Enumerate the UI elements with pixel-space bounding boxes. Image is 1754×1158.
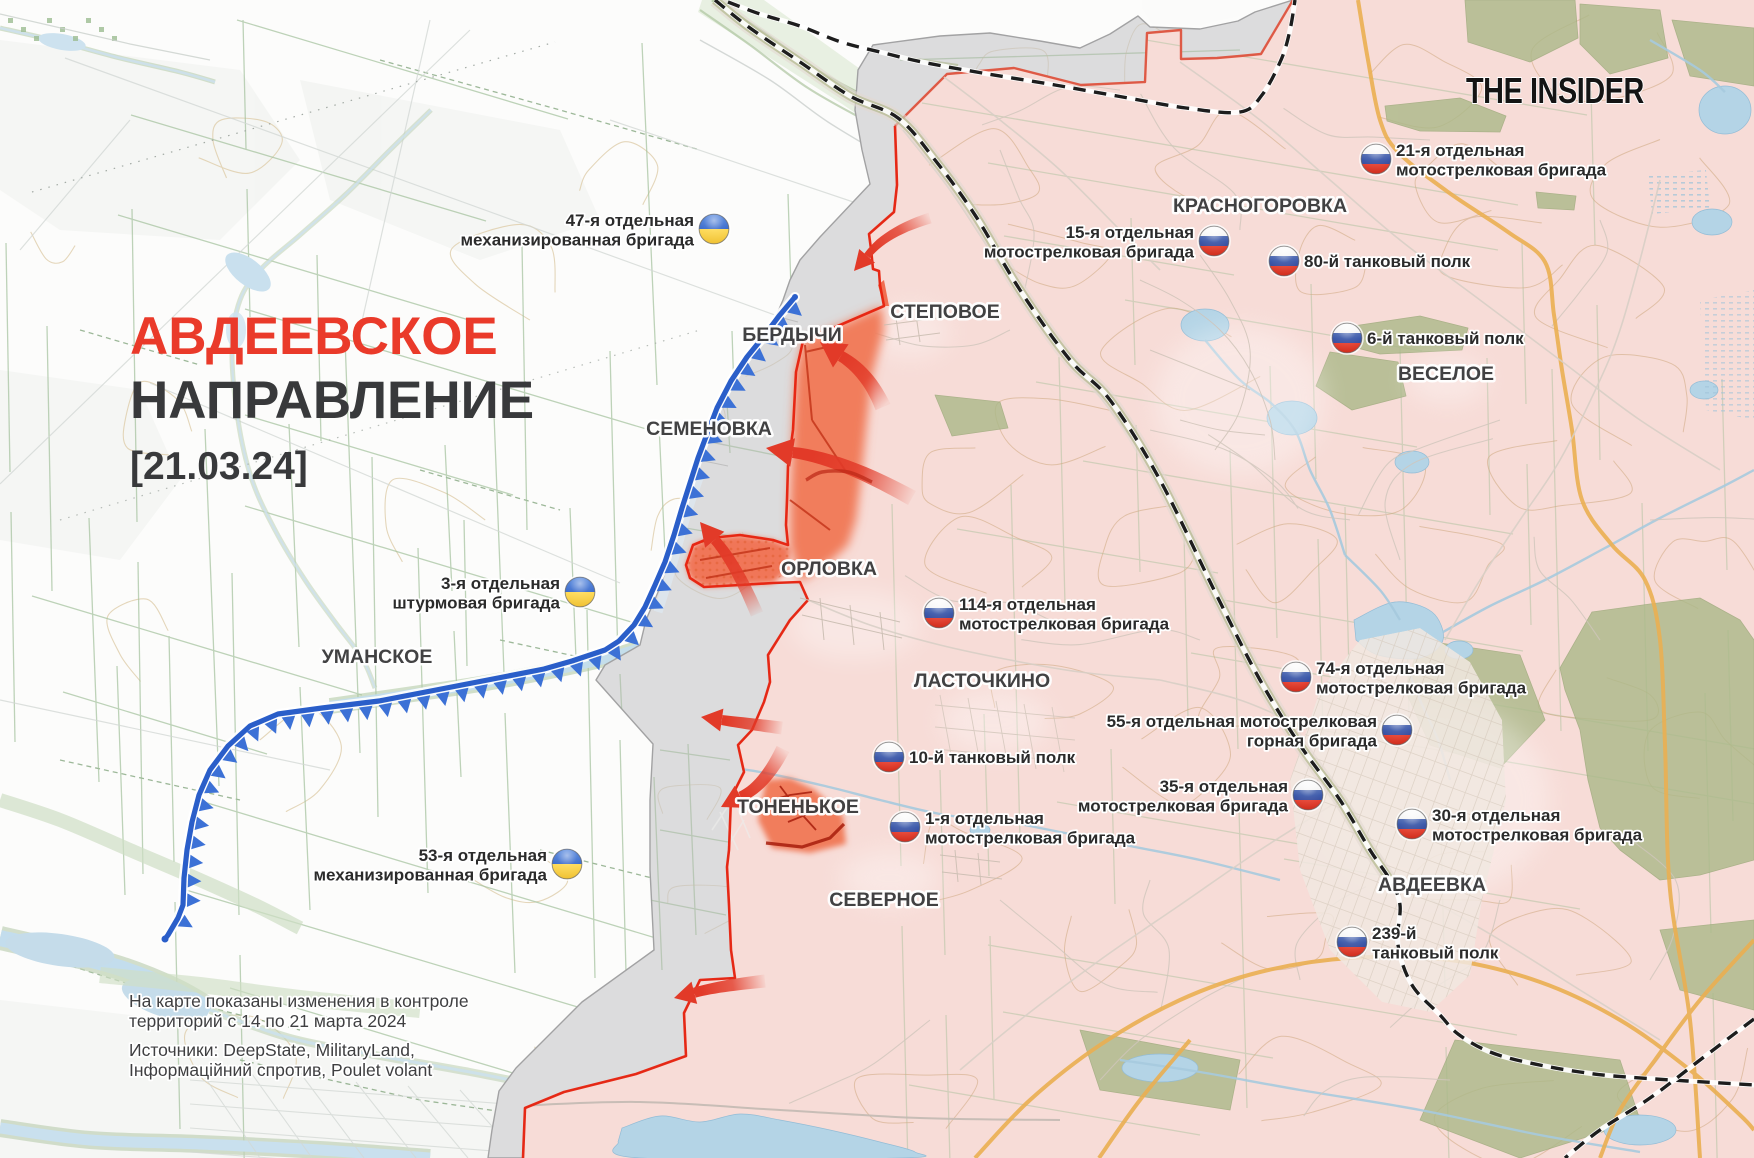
svg-text:мотострелковая бригада: мотострелковая бригада xyxy=(1316,678,1527,697)
svg-text:СТЕПОВОЕ: СТЕПОВОЕ xyxy=(890,301,999,323)
svg-text:Інформаційний спротив, Poulet: Інформаційний спротив, Poulet volant xyxy=(129,1060,432,1080)
svg-text:47-я отдельная: 47-я отдельная xyxy=(566,211,694,230)
svg-text:горная бригада: горная бригада xyxy=(1247,731,1378,750)
svg-text:80-й танковый полк: 80-й танковый полк xyxy=(1304,252,1471,271)
svg-text:30-я отдельная: 30-я отдельная xyxy=(1432,806,1560,825)
svg-text:АВДЕЕВСКОЕ: АВДЕЕВСКОЕ xyxy=(130,307,498,366)
svg-text:[21.03.24]: [21.03.24] xyxy=(130,445,308,488)
svg-text:механизированная бригада: механизированная бригада xyxy=(313,865,547,884)
svg-text:СЕВЕРНОЕ: СЕВЕРНОЕ xyxy=(829,889,938,911)
svg-text:6-й танковый полк: 6-й танковый полк xyxy=(1367,329,1524,348)
svg-text:мотострелковая бригада: мотострелковая бригада xyxy=(1396,160,1607,179)
svg-text:55-я отдельная мотострелковая: 55-я отдельная мотострелковая xyxy=(1107,712,1377,731)
svg-text:мотострелковая бригада: мотострелковая бригада xyxy=(1432,825,1643,844)
svg-text:танковый полк: танковый полк xyxy=(1372,943,1499,962)
svg-text:штурмовая бригада: штурмовая бригада xyxy=(393,593,561,612)
svg-text:АВДЕЕВКА: АВДЕЕВКА xyxy=(1378,874,1486,896)
svg-text:Источники: DeepState, Military: Источники: DeepState, MilitaryLand, xyxy=(129,1040,415,1060)
svg-text:На карте показаны изменения в: На карте показаны изменения в контроле xyxy=(129,991,469,1011)
svg-text:НАПРАВЛЕНИЕ: НАПРАВЛЕНИЕ xyxy=(130,371,534,430)
svg-text:СЕМЕНОВКА: СЕМЕНОВКА xyxy=(646,418,772,440)
svg-text:1-я отдельная: 1-я отдельная xyxy=(925,809,1044,828)
svg-text:53-я отдельная: 53-я отдельная xyxy=(419,846,547,865)
svg-text:15-я отдельная: 15-я отдельная xyxy=(1066,223,1194,242)
svg-text:мотострелковая бригада: мотострелковая бригада xyxy=(984,242,1195,261)
svg-text:ЛАСТОЧКИНО: ЛАСТОЧКИНО xyxy=(914,670,1050,692)
svg-text:35-я отдельная: 35-я отдельная xyxy=(1160,777,1288,796)
svg-text:3-я отдельная: 3-я отдельная xyxy=(441,574,560,593)
svg-text:21-я отдельная: 21-я отдельная xyxy=(1396,141,1524,160)
svg-text:мотострелковая бригада: мотострелковая бригада xyxy=(959,614,1170,633)
svg-text:территорий с 14 по 21 марта 20: территорий с 14 по 21 марта 2024 xyxy=(129,1011,407,1031)
svg-text:114-я отдельная: 114-я отдельная xyxy=(959,595,1096,614)
svg-text:10-й танковый полк: 10-й танковый полк xyxy=(909,748,1076,767)
svg-text:ОРЛОВКА: ОРЛОВКА xyxy=(781,558,877,580)
svg-text:THE INSIDER: THE INSIDER xyxy=(1466,70,1644,111)
svg-text:74-я отдельная: 74-я отдельная xyxy=(1316,659,1444,678)
svg-text:механизированная бригада: механизированная бригада xyxy=(460,230,694,249)
svg-text:ТОНЕНЬКОЕ: ТОНЕНЬКОЕ xyxy=(737,796,859,818)
svg-text:мотострелковая бригада: мотострелковая бригада xyxy=(925,828,1136,847)
svg-text:ВЕСЕЛОЕ: ВЕСЕЛОЕ xyxy=(1398,363,1494,385)
svg-text:УМАНСКОЕ: УМАНСКОЕ xyxy=(322,646,433,668)
svg-text:КРАСНОГОРОВКА: КРАСНОГОРОВКА xyxy=(1173,195,1347,217)
svg-text:мотострелковая бригада: мотострелковая бригада xyxy=(1078,796,1289,815)
svg-text:БЕРДЫЧИ: БЕРДЫЧИ xyxy=(742,324,842,346)
svg-text:239-й: 239-й xyxy=(1372,924,1416,943)
